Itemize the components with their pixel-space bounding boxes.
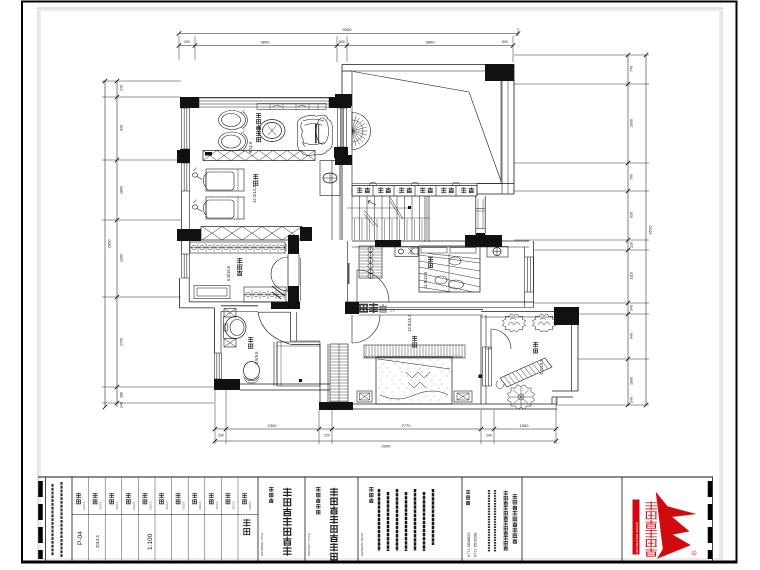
svg-text:DESGN: DESGN [183,501,186,510]
svg-text:GENERAL NOTE: GENERAL NOTE [360,533,364,556]
svg-text:DESGN: DESGN [166,501,169,510]
svg-text:340: 340 [630,305,634,311]
svg-text:210: 210 [630,242,634,248]
svg-text:630: 630 [630,212,634,218]
svg-text:2300: 2300 [268,423,278,428]
svg-text:240: 240 [630,397,634,403]
svg-text:240: 240 [486,434,492,438]
svg-text:DESGN: DESGN [149,501,152,510]
svg-text:940: 940 [630,333,634,339]
svg-text:2770: 2770 [402,423,412,428]
svg-text:DESGN: DESGN [83,501,86,510]
svg-text:6.7/10.2: 6.7/10.2 [539,359,544,375]
svg-text:2300: 2300 [120,254,124,262]
svg-text:1110: 1110 [630,272,634,279]
svg-text:DESGN: DESGN [199,501,202,510]
svg-text:PROJECT TITLE: PROJECT TITLE [307,533,311,556]
svg-text:DECORATION GROUP: DECORATION GROUP [635,522,639,554]
svg-text:6.5/9.5: 6.5/9.5 [254,351,259,364]
svg-text:P-04: P-04 [77,531,84,545]
svg-text:700: 700 [630,174,634,180]
svg-text:9340: 9340 [382,444,392,449]
svg-text:2700: 2700 [120,338,124,346]
svg-text:1800: 1800 [120,186,124,194]
svg-text:12.2/14.2: 12.2/14.2 [252,185,257,203]
svg-text:R: R [693,552,695,556]
svg-text:200: 200 [184,40,190,44]
svg-text:1:100: 1:100 [147,533,154,550]
svg-text:11.9/13.6: 11.9/13.6 [423,271,428,289]
svg-text:9520: 9520 [648,225,653,235]
svg-text:DESGN: DESGN [116,501,119,510]
svg-text:740: 740 [630,66,634,72]
svg-text:DESGN: DESGN [133,501,136,510]
svg-text:0771-5515288: 0771-5515288 [474,533,478,558]
svg-text:DRAWING TITLE: DRAWING TITLE [260,533,264,556]
svg-text:940: 940 [120,125,124,131]
svg-text:13.9/15.3: 13.9/15.3 [407,314,412,332]
svg-text:0771-5608823: 0771-5608823 [467,533,471,558]
svg-text:500: 500 [339,40,345,44]
svg-text:9530: 9530 [343,27,353,32]
svg-text:2850: 2850 [107,239,112,249]
svg-text:500: 500 [502,40,508,44]
svg-text:DESGN: DESGN [216,501,219,510]
svg-text:9/11.9: 9/11.9 [248,141,253,153]
svg-text:3800: 3800 [426,40,436,45]
svg-text:1500: 1500 [520,423,530,428]
svg-text:DESGN: DESGN [249,501,252,510]
svg-text:230: 230 [218,434,224,438]
svg-text:3600: 3600 [261,40,271,45]
svg-text:DESGN: DESGN [100,501,103,510]
svg-text:DESGN: DESGN [232,501,235,510]
svg-text:1800: 1800 [630,377,634,385]
svg-text:6.8/10.5: 6.8/10.5 [226,265,231,281]
svg-text:2060: 2060 [630,119,634,127]
svg-text:380: 380 [120,392,124,398]
svg-text:220: 220 [324,434,330,438]
svg-text:240: 240 [120,85,124,91]
svg-text:2013.5: 2013.5 [95,535,100,548]
svg-text:zx: zx [390,308,396,314]
